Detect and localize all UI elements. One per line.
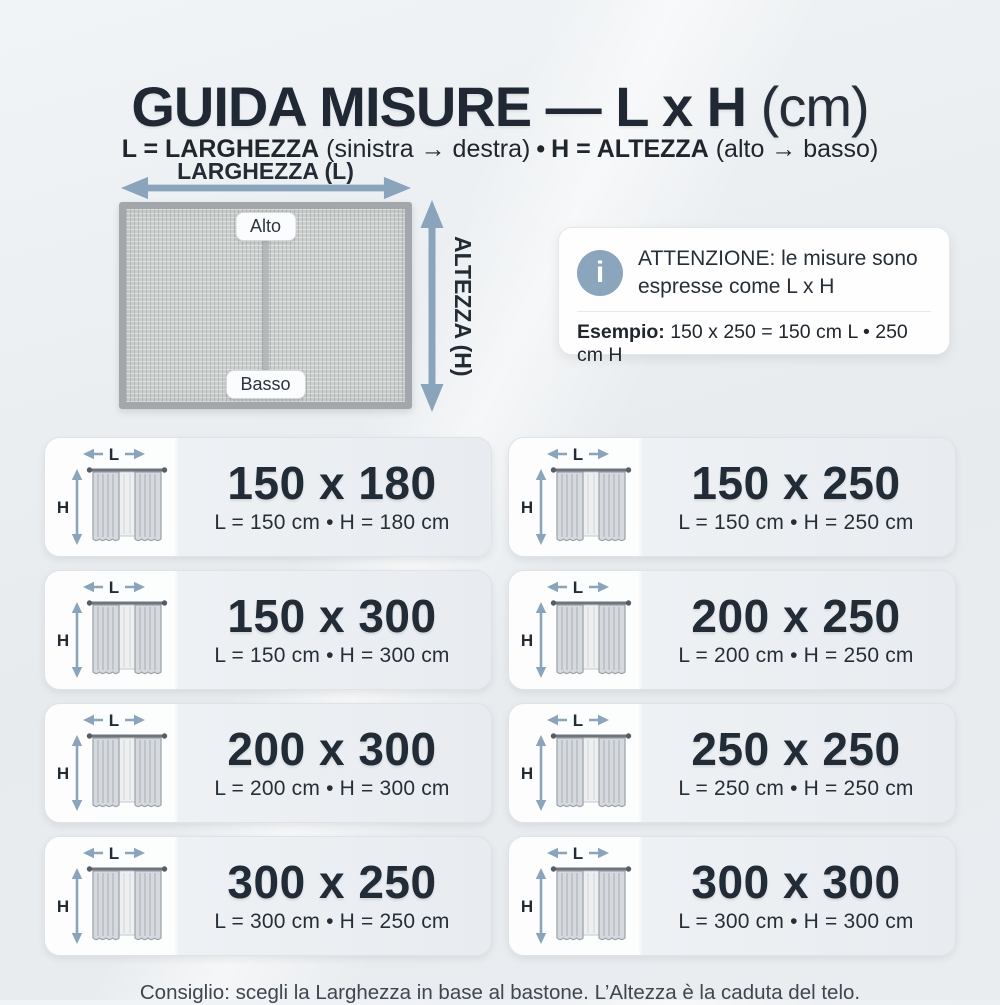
fabric-center-seam <box>263 233 268 382</box>
size-card-text: 150 x 250 L = 150 cm • H = 250 cm <box>645 438 955 556</box>
curtain-icon <box>45 704 181 822</box>
size-detail: L = 150 cm • H = 180 cm <box>214 511 449 535</box>
size-detail: L = 150 cm • H = 300 cm <box>214 644 449 668</box>
size-detail: L = 200 cm • H = 300 cm <box>214 777 449 801</box>
attention-card: i ATTENZIONE: le misure sono espresse co… <box>558 227 950 355</box>
curtain-icon <box>509 571 645 689</box>
attention-row: i ATTENZIONE: le misure sono espresse co… <box>577 245 931 300</box>
attention-message: ATTENZIONE: le misure sono espresse come… <box>638 245 931 300</box>
size-card-text: 300 x 300 L = 300 cm • H = 300 cm <box>645 837 955 955</box>
curtain-icon <box>509 704 645 822</box>
curtain-icon <box>509 438 645 556</box>
size-card-text: 300 x 250 L = 300 cm • H = 250 cm <box>181 837 491 955</box>
size-detail: L = 150 cm • H = 250 cm <box>678 511 913 535</box>
attention-divider <box>577 311 931 312</box>
alto-badge: Alto <box>235 212 296 241</box>
curtain-icon <box>509 837 645 955</box>
size-card-150x250: 150 x 250 L = 150 cm • H = 250 cm <box>508 437 956 557</box>
page-title: GUIDA MISURE — L x H (cm) <box>0 74 1000 139</box>
curtain-icon <box>45 438 181 556</box>
size-detail: L = 300 cm • H = 250 cm <box>214 910 449 934</box>
size-card-text: 150 x 180 L = 150 cm • H = 180 cm <box>181 438 491 556</box>
page-title-unit: (cm) <box>761 75 869 138</box>
size-value: 250 x 250 <box>691 726 900 772</box>
subtitle-h-note: (alto → basso) <box>716 135 879 163</box>
size-card-text: 150 x 300 L = 150 cm • H = 300 cm <box>181 571 491 689</box>
altezza-label: ALTEZZA (H) <box>446 200 476 412</box>
subtitle-h-definition: H = ALTEZZA <box>551 135 709 163</box>
example-label: Esempio: <box>577 321 665 343</box>
size-card-text: 200 x 300 L = 200 cm • H = 300 cm <box>181 704 491 822</box>
size-value: 150 x 180 <box>227 460 436 506</box>
curtain-icon <box>45 571 181 689</box>
size-card-300x300: 300 x 300 L = 300 cm • H = 300 cm <box>508 836 956 956</box>
fabric-panel: Alto Basso <box>119 202 412 409</box>
attention-example: Esempio: 150 x 250 = 150 cm L • 250 cm H <box>577 321 931 367</box>
size-card-text: 250 x 250 L = 250 cm • H = 250 cm <box>645 704 955 822</box>
footer-tip: Consiglio: scegli la Larghezza in base a… <box>0 981 1000 1005</box>
measure-diagram: LARGHEZZA (L) Alto Basso ALTEZZA (H) <box>80 158 500 433</box>
size-guide-poster: GUIDA MISURE — L x H (cm) L = LARGHEZZA … <box>0 0 1000 1000</box>
subtitle-separator: • <box>530 135 551 163</box>
size-card-text: 200 x 250 L = 200 cm • H = 250 cm <box>645 571 955 689</box>
size-card-200x300: 200 x 300 L = 200 cm • H = 300 cm <box>44 703 492 823</box>
info-icon: i <box>577 250 623 296</box>
size-card-250x250: 250 x 250 L = 250 cm • H = 250 cm <box>508 703 956 823</box>
size-detail: L = 300 cm • H = 300 cm <box>678 910 913 934</box>
size-card-300x250: 300 x 250 L = 300 cm • H = 250 cm <box>44 836 492 956</box>
size-value: 150 x 250 <box>691 460 900 506</box>
size-detail: L = 200 cm • H = 250 cm <box>678 644 913 668</box>
size-value: 200 x 300 <box>227 726 436 772</box>
size-card-150x180: 150 x 180 L = 150 cm • H = 180 cm <box>44 437 492 557</box>
height-arrow-icon <box>419 200 445 412</box>
width-arrow-icon <box>121 175 411 201</box>
curtain-icon <box>45 837 181 955</box>
size-value: 200 x 250 <box>691 593 900 639</box>
size-card-150x300: 150 x 300 L = 150 cm • H = 300 cm <box>44 570 492 690</box>
size-value: 150 x 300 <box>227 593 436 639</box>
size-value: 300 x 300 <box>691 859 900 905</box>
page-title-main: GUIDA MISURE — L x H <box>131 75 746 138</box>
size-card-200x250: 200 x 250 L = 200 cm • H = 250 cm <box>508 570 956 690</box>
basso-badge: Basso <box>225 370 305 399</box>
size-value: 300 x 250 <box>227 859 436 905</box>
size-detail: L = 250 cm • H = 250 cm <box>678 777 913 801</box>
size-cards-grid: 150 x 180 L = 150 cm • H = 180 cm 150 x … <box>44 437 956 956</box>
